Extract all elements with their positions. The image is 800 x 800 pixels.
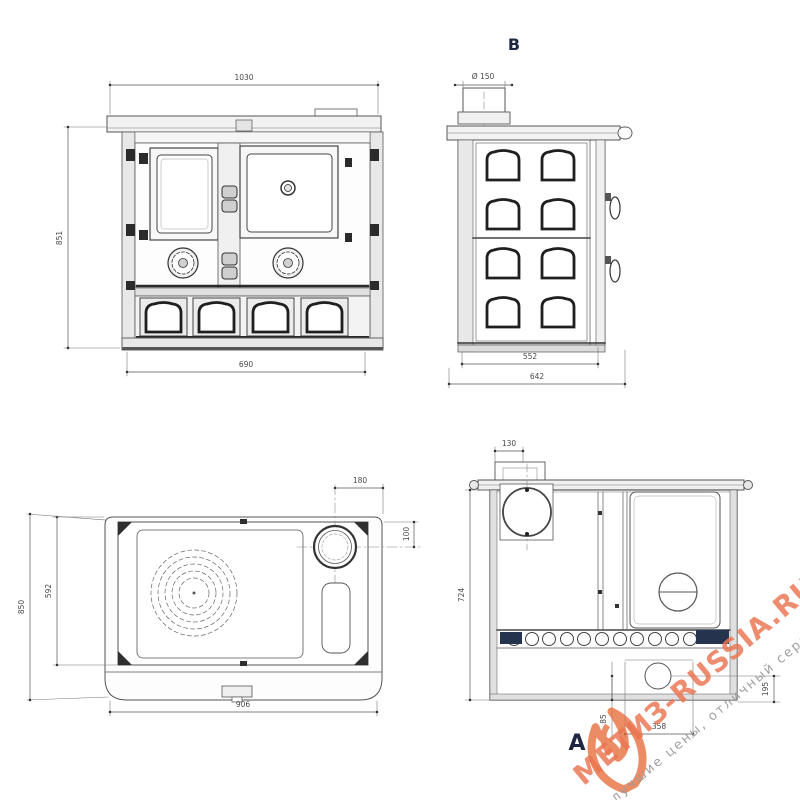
top-depth-outer-dimension: 850: [17, 514, 108, 700]
drawer: [140, 298, 187, 336]
top-flue-center-dimension: 100: [384, 522, 418, 547]
front-width-dimension: 1030: [110, 73, 378, 114]
front-top-plate: [107, 109, 381, 132]
flue-diameter-dimension: Ø 150: [455, 72, 512, 90]
view-b-label: B: [508, 35, 520, 54]
air-rosette-right: [273, 248, 303, 278]
front-view: 1030: [55, 73, 383, 376]
oven-door: [240, 146, 338, 238]
top-width-label: 906: [236, 700, 251, 709]
top-view: 180 100 592 850 906: [17, 476, 420, 716]
door-handles-side: [605, 193, 620, 282]
top-width-dimension: 906: [110, 700, 377, 716]
top-flue-center-label: 100: [402, 527, 411, 542]
oven-thermometer: [281, 181, 295, 195]
view-a-label: A: [568, 731, 585, 756]
side-depth-outer-label: 642: [530, 372, 545, 381]
center-stile: [218, 143, 240, 288]
top-vent-slot: [322, 583, 350, 653]
air-rosette-left: [168, 248, 198, 278]
section-height-dimension: 724: [457, 490, 489, 700]
section-outlet-distance-label: 358: [652, 722, 667, 731]
section-height-label: 724: [457, 588, 466, 603]
top-flue-edge-dimension: 180: [335, 476, 383, 514]
drawer-row: [135, 286, 370, 338]
drawer: [193, 298, 240, 336]
section-oven-chamber: [630, 492, 720, 628]
technical-drawing-sheet: 1030: [0, 0, 800, 800]
hotplate-rings: [137, 530, 303, 658]
stove-orthographic-drawing: 1030: [0, 0, 800, 800]
front-width-label: 1030: [234, 73, 253, 82]
side-body: [458, 140, 620, 352]
drawer: [247, 298, 294, 336]
front-base-width-dimension: 690: [127, 352, 365, 376]
front-base-width-label: 690: [239, 360, 254, 369]
side-depth-inner-label: 552: [523, 352, 538, 361]
firebox-door: [150, 148, 218, 240]
top-flue-edge-label: 180: [353, 476, 368, 485]
top-depth-inner-label: 592: [44, 584, 53, 599]
side-view: B Ø 150: [447, 35, 632, 388]
section-flue-box-label: 130: [502, 439, 517, 448]
section-outlet-distance-dimension: 358: [625, 722, 693, 734]
side-top-plate: [447, 126, 632, 140]
section-view: 130: [457, 439, 780, 756]
drawer: [301, 298, 348, 336]
section-outlet-height-dimension: 195: [761, 676, 774, 702]
section-outlet-height-label: 195: [761, 682, 770, 697]
flue-diameter-label: Ø 150: [472, 72, 495, 81]
top-depth-outer-label: 850: [17, 600, 26, 615]
section-flue-box-dimension: 130: [495, 439, 523, 463]
section-outlet-offset-label: 85: [599, 714, 608, 724]
front-base: [122, 338, 383, 350]
front-height-dimension: 851: [55, 127, 120, 348]
front-height-label: 851: [55, 231, 64, 246]
